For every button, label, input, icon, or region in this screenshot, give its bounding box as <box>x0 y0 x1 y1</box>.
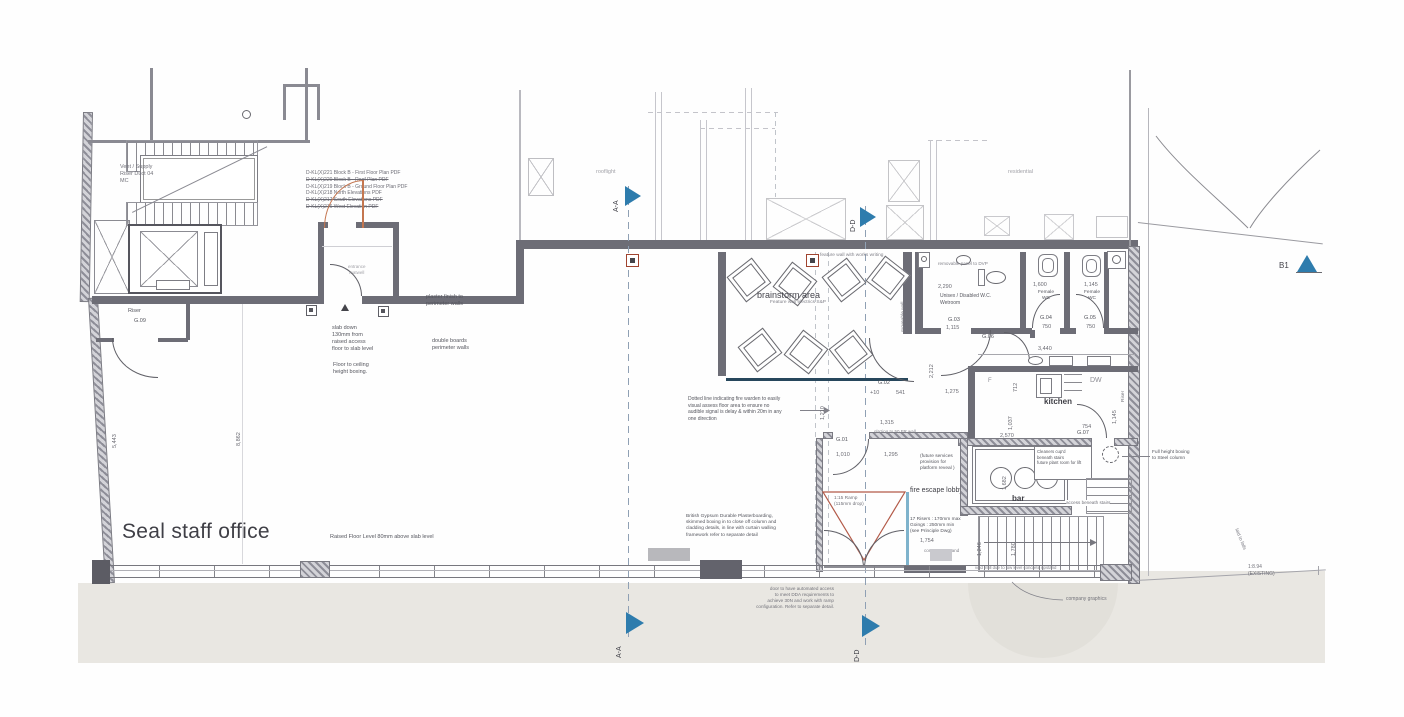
shaft-line <box>706 120 707 242</box>
room-id-g05: G.05 <box>1084 315 1096 322</box>
rooflight-box <box>528 158 554 196</box>
core-wall <box>150 68 153 142</box>
lobby-glazed-screen <box>906 492 909 566</box>
rooflight-box <box>984 216 1010 236</box>
wall-north-main <box>516 240 1138 249</box>
wall-east <box>1128 246 1140 584</box>
wc-pan-g05-seat <box>1086 259 1097 273</box>
label-fire-lobby: fire escape lobby <box>910 486 963 495</box>
section-label-dd-top: D-D <box>849 220 858 232</box>
rooflight-box <box>766 198 846 240</box>
annotation-boxing-steel: Full height boxing to Steel column <box>1152 450 1210 462</box>
annotation-laid-to-falls: laid to falls <box>1232 528 1246 551</box>
room-id-g09: G.09 <box>134 318 146 325</box>
annotation-dda: door to have automated access to meet DD… <box>748 586 834 610</box>
pavement-east <box>1135 571 1325 663</box>
riser-wall <box>158 338 188 342</box>
room-id-g02: G.02 <box>878 380 890 387</box>
riser-door-arc <box>112 338 158 378</box>
wc-wall-south <box>1104 328 1138 334</box>
section-flag-aa-top <box>625 186 641 206</box>
annotation-raised-floor: Raised Floor Level 80mm above slab level <box>330 534 434 541</box>
above-outline-box <box>1096 216 1128 238</box>
g06-wall <box>1030 330 1035 338</box>
stair-center-line <box>984 542 1096 543</box>
shaft-line <box>745 88 746 242</box>
section-label-dd-bottom: D-D <box>853 650 862 662</box>
floor-plan-canvas: rooflight residential Vent / Supply Rise… <box>0 0 1404 717</box>
company-graphics-leader <box>1008 580 1068 602</box>
drawing-ref-line: D-KL(X)221 Block B - First Floor Plan PD… <box>306 170 407 177</box>
dim-v2212: 2,212 <box>929 364 936 378</box>
facade-pier <box>930 549 952 561</box>
shopfront-glazing <box>104 565 1132 578</box>
section-flag-dd-top <box>860 207 876 227</box>
dim-wc5-w: 1,145 <box>1084 282 1098 289</box>
section-label-aa-bottom: A-A <box>615 646 624 658</box>
door-closer-symbol <box>242 110 251 119</box>
kitchen-wall-south <box>1114 438 1138 446</box>
marker-b1-baseline <box>1296 272 1322 273</box>
annotation-cleaners: Cleaners cup'd beneath stairs future pla… <box>1037 449 1091 466</box>
annotation-stair-note: 17 Risers : 170mm max Goings : 250mm min… <box>910 517 982 536</box>
marker-b1-label: B1 <box>1279 261 1289 271</box>
label-fridge: F <box>988 378 992 386</box>
wc-cistern-wetroom <box>978 269 985 286</box>
lift-door-recess <box>204 232 218 286</box>
feature-wall-box <box>806 254 819 267</box>
above-outline-dash <box>775 112 776 197</box>
rooflight-box <box>888 160 920 202</box>
label-moveable-wall: moveable wall <box>901 302 907 332</box>
dim-d754: 754 <box>1082 424 1091 431</box>
annotation-company-graphics: company graphics <box>1066 596 1107 603</box>
annotation-plaster-finish: plaster finish to perimeter walls <box>426 294 482 308</box>
dim-d1754: 1,754 <box>920 538 934 545</box>
bar-wall-west <box>960 438 968 516</box>
annotation-double-boards: double boards perimeter walls <box>432 338 488 352</box>
kitchen-wall-west <box>968 366 975 444</box>
core-wall-stub <box>317 84 320 120</box>
dim-wc5-d: 750 <box>1086 324 1095 331</box>
wc-divider <box>1064 252 1070 330</box>
label-bar: bar <box>1012 494 1024 504</box>
steel-column <box>1102 446 1119 463</box>
room-id-g06: G.06 <box>982 334 994 341</box>
dim-v1037: 1,037 <box>1008 416 1015 430</box>
dim-g02-c: 1,275 <box>945 389 959 396</box>
room-id-g03: G.03 <box>948 317 960 324</box>
annotation-feature-wall-writing: feature wall with works writing <box>820 253 883 259</box>
annotation-slab-down: slab down 130mm from raised access floor… <box>332 325 382 354</box>
wall-face-line <box>519 90 521 242</box>
b1-door-arcs <box>1152 130 1324 232</box>
annotation-vent-duct: Vent / Supply Riser Duct 04 MC <box>120 164 172 185</box>
label-riser-side: Riser <box>1121 391 1127 402</box>
facade-column <box>1100 564 1132 581</box>
wc-divider <box>1020 252 1026 330</box>
dim-corr: 3,440 <box>1038 346 1052 353</box>
label-rooflight: rooflight <box>596 169 616 176</box>
lift-pier-hatch <box>94 220 130 294</box>
dim-wet-w: 2,290 <box>938 284 952 291</box>
riser-wall <box>186 300 190 340</box>
core-wall <box>305 68 308 142</box>
wc-wall-south <box>915 328 941 334</box>
annotation-removable-panel: removable panel to DVP <box>938 261 988 267</box>
bar-stool <box>1014 467 1036 489</box>
kitchen-shelves <box>1064 374 1082 398</box>
brainstorm-chair <box>738 328 783 373</box>
bar-wall-south <box>960 506 1072 515</box>
door-arc-g02 <box>869 338 914 382</box>
dim-v1780: 1,780 <box>1011 542 1018 556</box>
wall-socket-box <box>378 306 389 317</box>
dim-d1295: 1,295 <box>884 452 898 459</box>
above-outline-dash <box>928 140 988 141</box>
basin-symbol <box>1028 356 1043 365</box>
dim-lobby-w: 1,315 <box>880 420 894 427</box>
room-id-g04: G.04 <box>1040 315 1052 322</box>
office-grid-line <box>242 304 243 564</box>
annotation-ramp: 1:15 Ramp (115mm drop) <box>834 496 864 508</box>
facade-pier <box>648 548 690 561</box>
brainstorm-wall-west <box>718 252 726 376</box>
lobby-mat-line <box>322 246 392 247</box>
label-kitchen: kitchen <box>1044 397 1072 407</box>
shopfront-inner-line <box>104 570 1132 571</box>
facade-column <box>92 560 110 584</box>
shaft-line <box>936 140 937 240</box>
label-female-wc-2: Female WC <box>1084 290 1100 302</box>
kitchen-wall-north <box>975 366 1138 372</box>
annotation-glazing-fr: glazing to 50 FR wall <box>874 429 916 435</box>
lift-car <box>140 231 198 287</box>
annotation-access-stairs: access beneath stairs <box>1066 500 1110 506</box>
entrance-door-leaf <box>362 180 364 228</box>
facade-column <box>300 561 330 578</box>
wc-pan-wetroom <box>986 271 1006 284</box>
extract-fan-icon <box>1112 255 1121 264</box>
dim-v1682: 1,682 <box>1002 476 1009 490</box>
core-wall-stub <box>283 84 320 87</box>
basin-symbol <box>1049 356 1073 366</box>
label-riser: Riser <box>128 308 141 315</box>
dim-wc4-w: 1,600 <box>1033 282 1047 289</box>
marker-b1-flag <box>1297 255 1317 272</box>
dim-d1010: 1,010 <box>836 452 850 459</box>
vanity-counter-line <box>978 354 1135 355</box>
shaft-line <box>655 92 656 242</box>
dim-d2570: 2,570 <box>1000 433 1014 440</box>
dim-g02-b: 541 <box>896 390 905 397</box>
annotation-gypsum: British Gypsum Durable Plasterboarding, … <box>686 514 804 539</box>
kitchen-appliance-inner <box>1040 378 1052 394</box>
wc-wall-south <box>1060 328 1076 334</box>
dim-v1210: 1,210 <box>820 406 827 420</box>
dim-v1145: 1,145 <box>1112 410 1119 424</box>
shaft-line <box>700 120 701 242</box>
above-outline-dash <box>648 112 778 113</box>
rooflight-box <box>1044 214 1074 240</box>
dim-v712: 712 <box>1013 383 1020 392</box>
section-line-dd <box>865 206 866 648</box>
above-outline-dash <box>700 128 775 129</box>
ground-line-tick <box>1318 566 1319 575</box>
brainstorm-chair <box>829 330 874 375</box>
lobby-wall-left <box>318 225 324 304</box>
annotation-feature-wall: Feature wall electrics S&P <box>770 300 826 306</box>
dim-g02-a: +10 <box>870 390 879 397</box>
dim-wc4-d: 750 <box>1042 324 1051 331</box>
main-stair-treads <box>978 516 1104 572</box>
label-office: Seal staff office <box>122 518 270 545</box>
annotation-slope: 1:8.94 (EXISTING) <box>1248 564 1275 577</box>
shaft-line <box>661 92 662 242</box>
shaft-line <box>930 140 931 240</box>
brainstorm-chair <box>784 330 829 375</box>
label-dishwasher: DW <box>1090 376 1102 385</box>
lobby-wall-right <box>393 225 399 304</box>
wall-step-vertical <box>516 242 524 304</box>
shaft-line <box>751 88 752 242</box>
feature-wall-box <box>626 254 639 267</box>
shower-head-icon <box>921 256 927 262</box>
room-id-g01: G.01 <box>836 437 848 444</box>
wall-east-upper-line <box>1129 70 1131 246</box>
lobby-wall-north <box>823 432 833 439</box>
core-wall-stub <box>283 84 286 120</box>
section-label-aa-top: A-A <box>612 200 621 212</box>
wall-north-office-left <box>92 296 320 304</box>
kitchen-wall-south <box>958 438 1092 446</box>
label-female-wc-1: Female WC <box>1038 290 1054 302</box>
wall-socket-box <box>306 305 317 316</box>
door-arc-g06 <box>1004 332 1030 362</box>
label-wetroom: Unisex / Disabled W.C. Wetroom <box>940 293 991 306</box>
dim-v1246: 1,246 <box>977 542 984 556</box>
boxing-leader <box>1122 456 1150 457</box>
boundary-line-east <box>1148 108 1149 576</box>
facade-column <box>700 560 742 579</box>
arrow-up-icon <box>341 304 349 311</box>
rooflight-box <box>886 205 924 240</box>
dim-g03-w: 1,115 <box>946 325 959 332</box>
basin-symbol <box>1087 356 1111 366</box>
core-bench <box>156 280 190 290</box>
wc-pan-g04-seat <box>1042 258 1054 273</box>
dim-v5443: 5,443 <box>112 434 119 448</box>
annotation-fire-warden: Dotted line indicating fire warden to ea… <box>688 396 800 422</box>
annotation-floor-ceiling: Floor to ceiling height boxing. <box>333 362 385 376</box>
label-residential: residential <box>1008 169 1033 176</box>
escape-stair-treads <box>1086 478 1132 514</box>
